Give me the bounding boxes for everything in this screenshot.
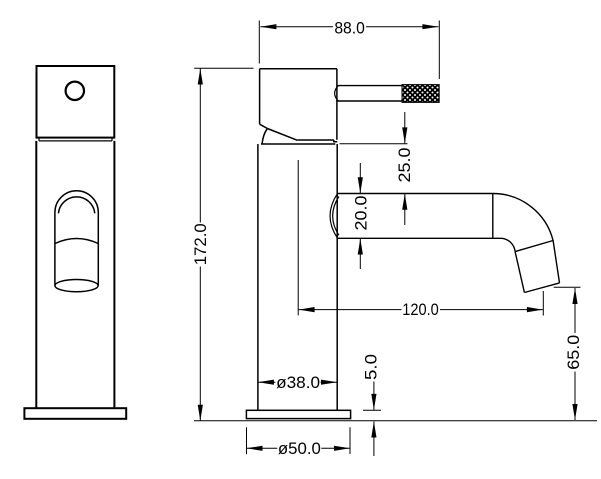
svg-text:ø38.0: ø38.0 bbox=[276, 374, 320, 392]
svg-text:172.0: 172.0 bbox=[192, 223, 210, 265]
svg-text:120.0: 120.0 bbox=[402, 301, 439, 319]
svg-text:ø50.0: ø50.0 bbox=[278, 440, 321, 458]
svg-text:20.0: 20.0 bbox=[353, 196, 371, 231]
svg-text:25.0: 25.0 bbox=[396, 148, 414, 183]
svg-text:5.0: 5.0 bbox=[363, 354, 381, 380]
svg-text:65.0: 65.0 bbox=[565, 335, 583, 370]
svg-text:88.0: 88.0 bbox=[334, 20, 365, 38]
